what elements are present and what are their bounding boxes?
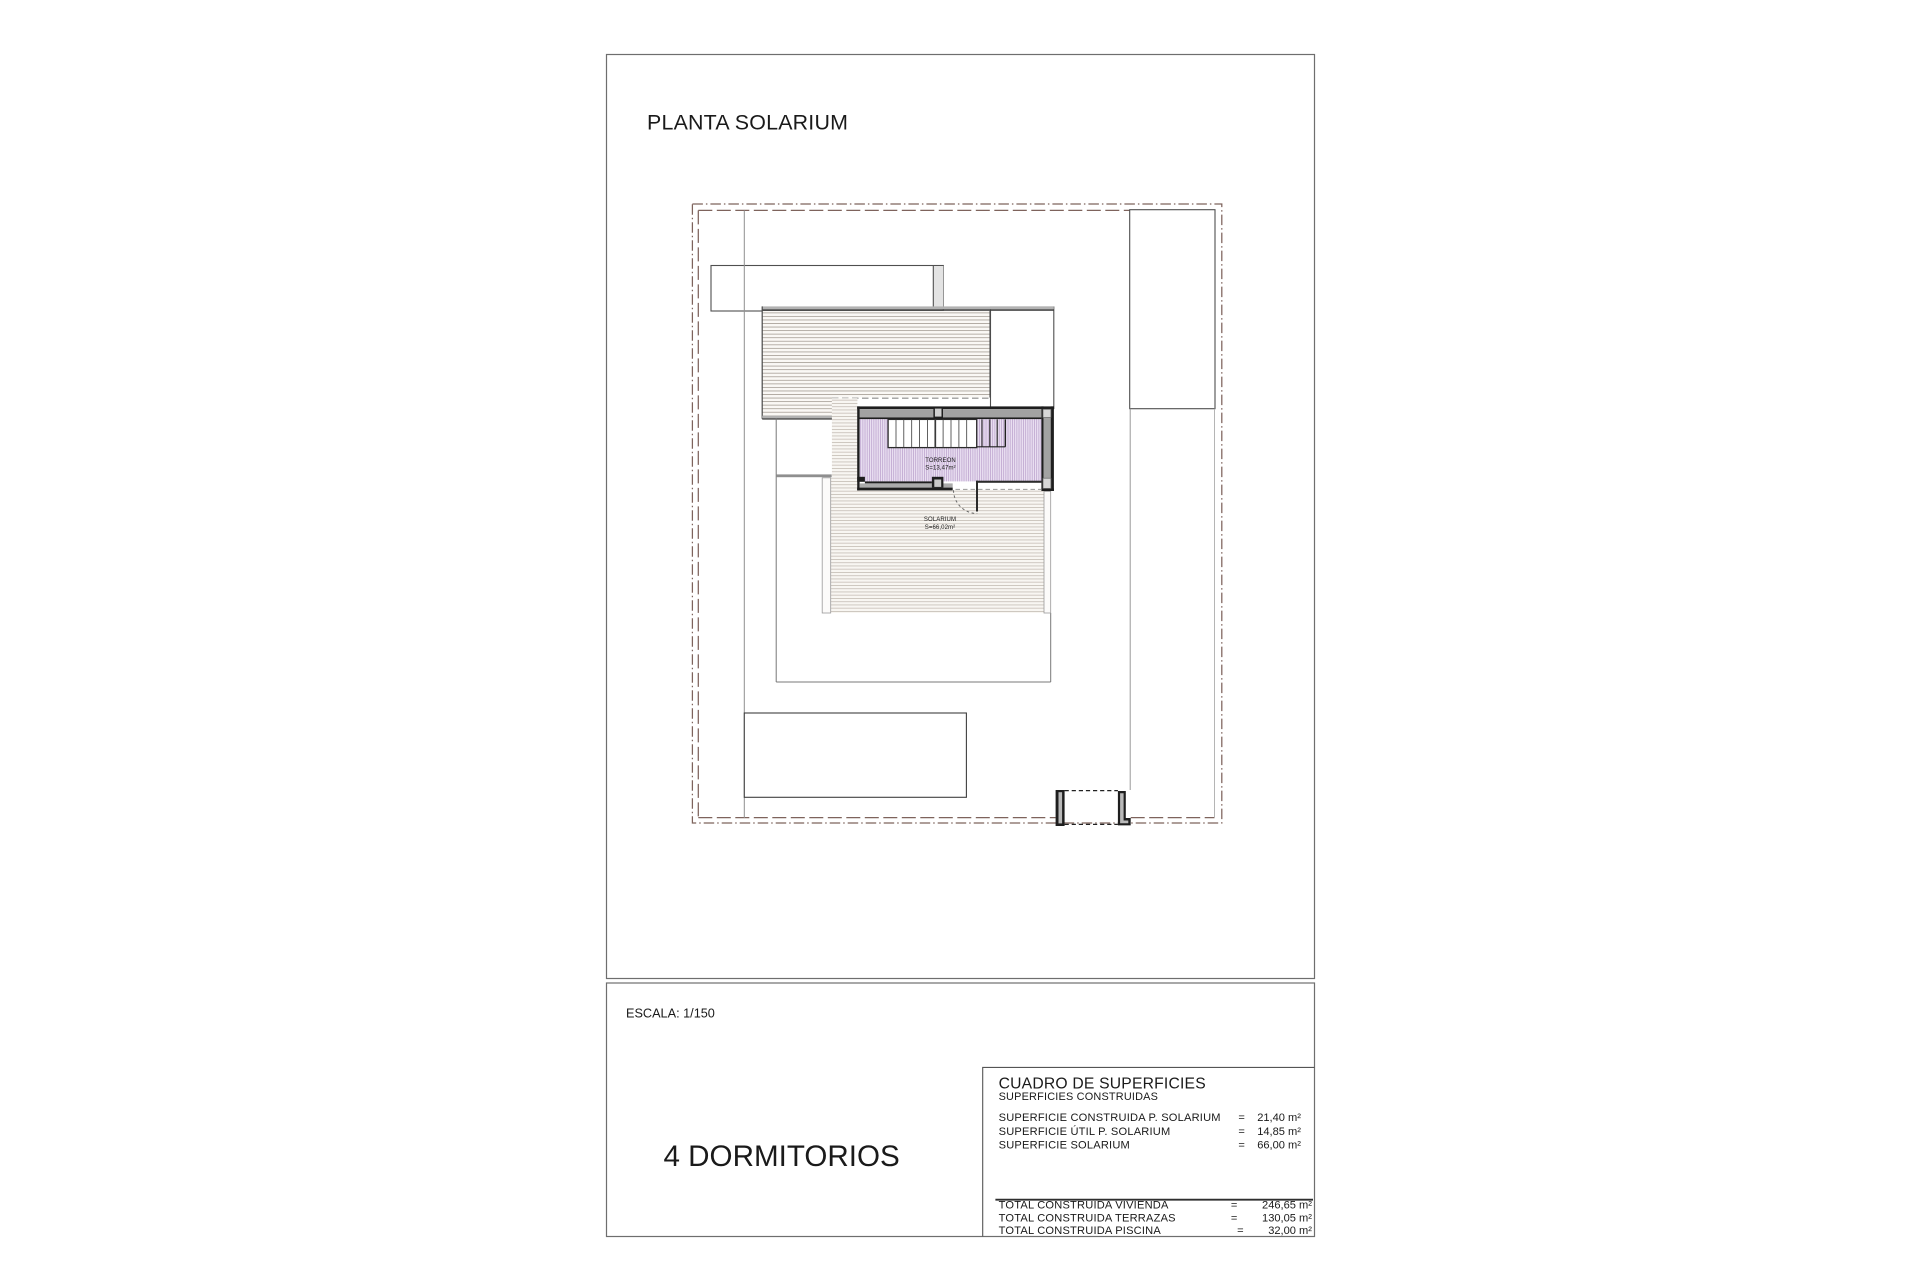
svg-text:SUPERFICIE ÚTIL P. SOLARIUM: SUPERFICIE ÚTIL P. SOLARIUM — [999, 1125, 1171, 1138]
svg-text:PLANTA SOLARIUM: PLANTA SOLARIUM — [647, 111, 848, 135]
svg-text:SUPERFICIES CONSTRUIDAS: SUPERFICIES CONSTRUIDAS — [999, 1091, 1159, 1103]
svg-text:S=13,47m²: S=13,47m² — [925, 466, 955, 472]
svg-text:= 66,00 m²: = 66,00 m² — [1238, 1140, 1301, 1152]
svg-text:S=66,02m²: S=66,02m² — [925, 525, 955, 531]
svg-text:= 21,40 m²: = 21,40 m² — [1238, 1112, 1301, 1124]
svg-text:= 32,00 m²: = 32,00 m² — [1237, 1225, 1312, 1237]
svg-text:= 130,05 m²: = 130,05 m² — [1231, 1212, 1312, 1224]
svg-text:TOTAL CONSTRUIDA VIVIENDA: TOTAL CONSTRUIDA VIVIENDA — [999, 1200, 1169, 1212]
svg-text:TOTAL CONSTRUIDA PISCINA: TOTAL CONSTRUIDA PISCINA — [999, 1225, 1162, 1237]
svg-text:SUPERFICIE CONSTRUIDA P. SOLAR: SUPERFICIE CONSTRUIDA P. SOLARIUM — [999, 1112, 1221, 1124]
svg-text:= 14,85 m²: = 14,85 m² — [1238, 1126, 1301, 1138]
svg-text:ESCALA: 1/150: ESCALA: 1/150 — [626, 1007, 715, 1021]
svg-text:= 246,65 m²: = 246,65 m² — [1231, 1200, 1312, 1212]
svg-text:4 DORMITORIOS: 4 DORMITORIOS — [664, 1140, 900, 1173]
svg-text:SOLARIUM: SOLARIUM — [924, 517, 956, 523]
svg-text:TOTAL CONSTRUIDA TERRAZAS: TOTAL CONSTRUIDA TERRAZAS — [999, 1212, 1176, 1224]
svg-text:TORREON: TORREON — [925, 458, 956, 464]
svg-text:SUPERFICIE SOLARIUM: SUPERFICIE SOLARIUM — [999, 1140, 1130, 1152]
